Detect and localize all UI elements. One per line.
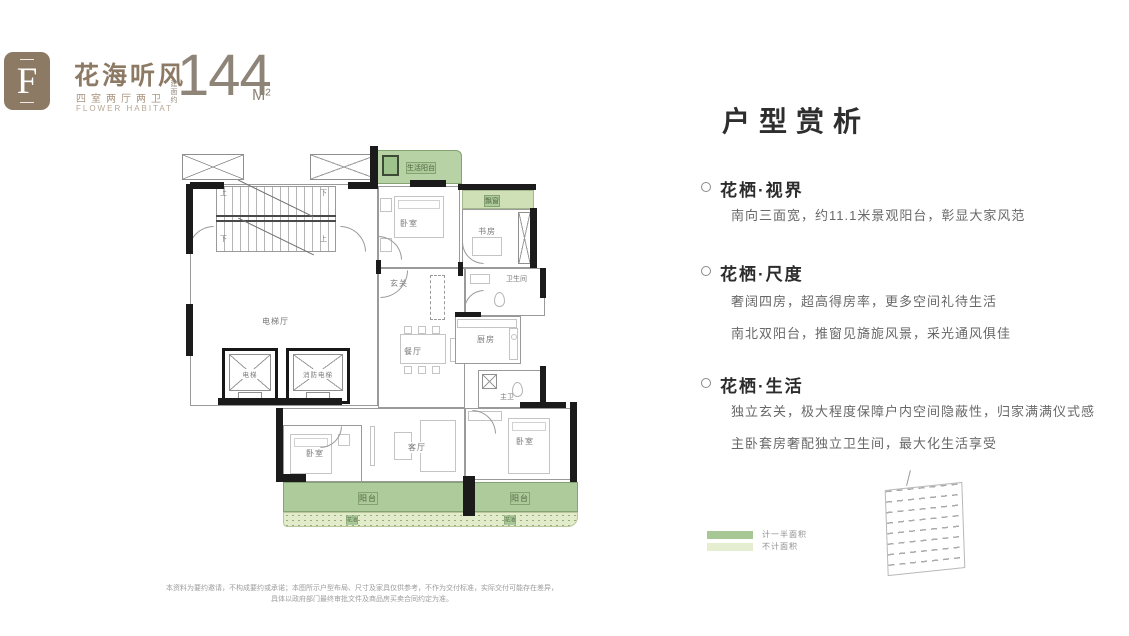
disclaimer: 本资料为要约邀请，不构成要约或承诺；本图所示户型布局、尺寸及家具仅供参考，不作为…	[158, 583, 566, 605]
wall-segment	[458, 184, 536, 190]
stair-down-label: 下	[220, 234, 227, 244]
chair	[404, 366, 412, 374]
flower-bed-strip	[283, 512, 578, 527]
section-text: 独立玄关，极大程度保障户内空间隐蔽性，归家满满仪式感	[731, 401, 1095, 420]
kitchen-counter	[457, 319, 517, 328]
stair-rail	[216, 220, 336, 222]
wall-segment	[370, 146, 378, 186]
analysis-title: 户型赏析	[722, 100, 870, 140]
disclaimer-line-2: 具体以政府部门最终审批文件及商品房买卖合同约定为准。	[158, 594, 566, 605]
label-bedroom-left: 卧室	[306, 448, 324, 459]
label-flower-bed: 花池	[346, 516, 358, 525]
wall-segment	[530, 208, 537, 268]
sink	[470, 274, 490, 284]
disclaimer-line-1: 本资料为要约邀请，不构成要约或承诺；本图所示户型布局、尺寸及家具仅供参考，不作为…	[158, 583, 566, 594]
label-kitchen: 厨房	[477, 334, 495, 345]
label-dining: 餐厅	[404, 346, 422, 357]
bullet-circle-icon	[701, 378, 711, 388]
chair	[418, 366, 426, 374]
kitchen-sink	[511, 334, 517, 340]
label-bedroom-right: 卧室	[516, 436, 534, 447]
section-text: 南北双阳台，推窗见旖旎风景，采光通风俱佳	[731, 323, 1011, 342]
wall-segment	[570, 402, 577, 482]
bullet-circle-icon	[701, 182, 711, 192]
legend-label-no-area: 不计面积	[762, 541, 798, 552]
label-balcony-left: 阳台	[358, 492, 378, 505]
fire-elevator-shaft: 消防电梯	[286, 348, 350, 404]
shoe-cabinet	[430, 275, 445, 320]
elevator-shaft: 电梯	[222, 348, 278, 404]
section-text: 南向三面宽，约11.1米景观阳台，彰显大家风范	[731, 205, 1025, 224]
section-heading-vision: 花栖·视界	[720, 176, 804, 201]
wall-segment	[186, 184, 193, 254]
stair-rail	[216, 215, 336, 217]
label-elevator-hall: 电梯厅	[262, 316, 289, 327]
section-text: 主卧套房奢配独立卫生间，最大化生活享受	[731, 433, 997, 452]
wall-segment	[463, 476, 475, 516]
chair	[418, 326, 426, 334]
wall-segment	[540, 268, 546, 298]
label-living: 客厅	[408, 442, 426, 453]
bullet-circle-icon	[701, 266, 711, 276]
chair	[432, 326, 440, 334]
wall-segment	[276, 474, 306, 482]
label-study: 书房	[478, 226, 496, 237]
wall-segment	[218, 398, 342, 405]
label-master-bath: 主卫	[500, 392, 514, 402]
wall-segment	[520, 402, 566, 408]
wall-segment	[348, 182, 378, 189]
wall-segment	[190, 182, 224, 189]
site-plan-thumbnail	[885, 482, 966, 576]
label-bedroom-top: 卧室	[400, 218, 418, 229]
section-heading-life: 花栖·生活	[720, 372, 804, 397]
stair-up-label: 上	[320, 234, 327, 244]
staircase	[216, 186, 336, 252]
wall-segment	[410, 180, 446, 187]
label-elevator: 电梯	[242, 369, 259, 379]
wall-segment	[186, 304, 193, 356]
ac-platform-left	[182, 154, 244, 180]
subtitle-english: FLOWER HABITAT	[76, 104, 173, 113]
chair	[404, 326, 412, 334]
section-text: 奢阔四房，超高得房率，更多空间礼待生活	[731, 291, 997, 310]
wall-segment	[276, 408, 283, 480]
badge-letter: F	[17, 60, 38, 103]
ac-platform-right	[310, 154, 378, 180]
legend-label-half-area: 计一半面积	[762, 529, 807, 540]
nightstand	[338, 434, 350, 446]
label-life-balcony: 生活阳台	[406, 162, 436, 174]
bed	[394, 196, 444, 238]
stair-up-label: 上	[220, 188, 227, 198]
shower	[482, 374, 497, 389]
legend-swatch-half-area	[707, 531, 753, 539]
area-unit: M²	[252, 87, 271, 105]
stair-down-label: 下	[320, 188, 327, 198]
unit-type-badge: F	[4, 52, 50, 110]
unit-spec-subtitle: 四室两厅两卫	[76, 90, 166, 105]
legend-swatch-no-area	[707, 543, 753, 551]
label-flower-bed: 花池	[504, 516, 516, 525]
label-balcony-right: 阳台	[510, 492, 530, 505]
label-fire-elevator: 消防电梯	[302, 369, 334, 379]
wall-segment	[458, 262, 463, 276]
washer-icon	[382, 155, 399, 176]
wall-segment	[376, 260, 381, 274]
tv-cabinet	[370, 426, 375, 466]
chair	[432, 366, 440, 374]
toilet-icon	[494, 292, 505, 307]
label-bathroom: 卫生间	[506, 274, 527, 284]
kitchen-counter	[509, 328, 518, 360]
floor-plan: 生活阳台 上 下 下 上 电梯厅 电梯 消防电梯 卧室 飘窗	[172, 142, 584, 538]
wall-segment	[455, 312, 481, 317]
section-heading-scale: 花栖·尺度	[720, 260, 804, 285]
thumbnail-pointer-line	[906, 470, 911, 486]
label-bay-window: 飘窗	[484, 195, 500, 207]
nightstand	[380, 198, 392, 212]
page: F 花海听风 四室两厅两卫 FLOWER HABITAT 建面约 144 M² …	[0, 0, 1129, 636]
